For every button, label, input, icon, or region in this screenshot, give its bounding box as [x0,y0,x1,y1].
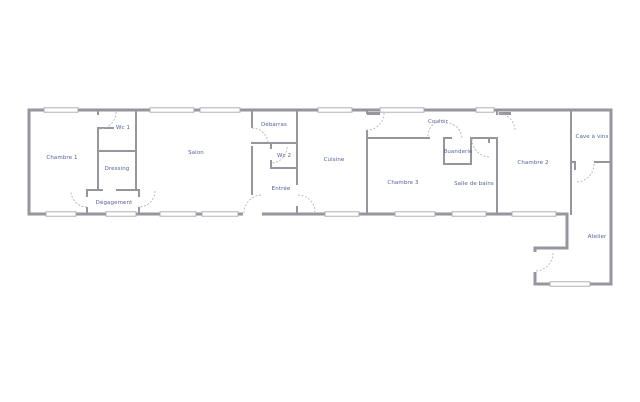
window-icon [46,212,76,216]
window-icon [512,212,556,216]
floorplan-canvas: Chambre 1Wc 1DressingDégagementSalonDéba… [0,0,640,402]
window-icon [160,212,196,216]
room-label-entree: Entrée [272,186,291,192]
room-label-wc-2: Wc 2 [277,153,291,159]
window-icon [318,108,352,112]
window-icon [476,108,494,112]
window-icon [44,108,78,112]
room-label-couloir: Couloir [428,119,448,125]
window-icon [150,108,194,112]
room-label-debarras: Débarras [261,122,287,128]
room-label-wc-1: Wc 1 [116,125,130,131]
room-label-salle-de-bains: Salle de bains [454,181,494,187]
room-label-degagement: Dégagement [96,200,133,206]
room-label-chambre-2: Chambre 2 [517,160,548,166]
room-label-chambre-3: Chambre 3 [387,180,418,186]
window-icon [106,212,136,216]
window-icon [452,212,486,216]
window-icon [325,212,359,216]
room-label-chambre-1: Chambre 1 [46,155,77,161]
window-icon [395,212,435,216]
window-icon [550,282,590,286]
door-openings [243,210,538,272]
room-label-cave-a-vins: Cave à vins [576,134,609,140]
window-icon [380,108,424,112]
room-label-salon: Salon [188,150,204,156]
exterior-walls [29,110,611,284]
room-label-buanderie: Buanderie [443,149,472,155]
room-label-atelier: Atelier [588,234,607,240]
room-label-dressing: Dressing [105,166,130,172]
room-label-cuisine: Cuisine [324,157,345,163]
window-icon [202,212,238,216]
window-icon [200,108,240,112]
